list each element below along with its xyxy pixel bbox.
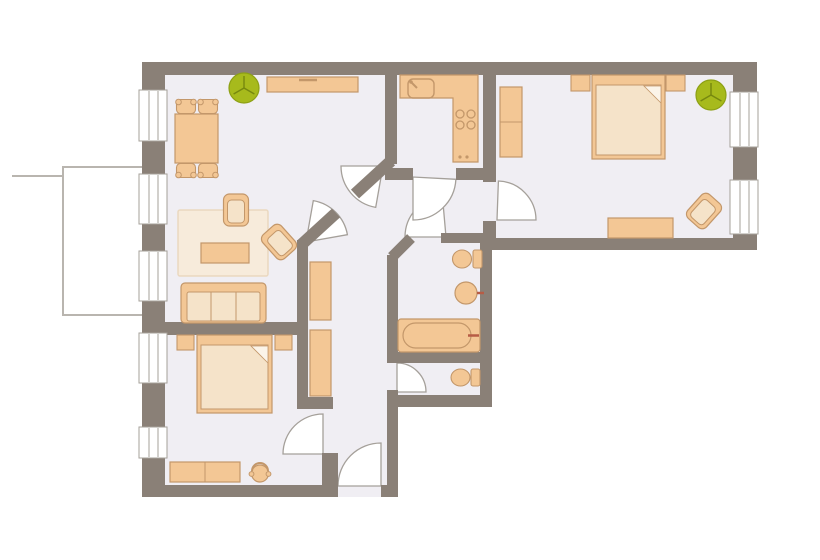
wall-bed1-west-upper [483, 75, 496, 182]
wall-bath-top [441, 233, 483, 243]
dining-table [175, 114, 218, 163]
potted-plant [229, 73, 259, 103]
wall-bed1-west-lower [483, 221, 496, 238]
nightstand [275, 335, 292, 350]
window-left-3 [139, 251, 167, 301]
potted-plant [696, 80, 726, 110]
sofa [181, 283, 266, 323]
layer-balcony [12, 167, 145, 315]
wall-hall-stub [297, 397, 333, 409]
wall-wc-west-stub [387, 390, 398, 396]
toilet [451, 369, 480, 386]
window-left-1 [139, 90, 167, 141]
nightstand [666, 75, 685, 91]
wall-wc-bottom [387, 395, 492, 407]
coffee-table [201, 243, 249, 263]
armchair [224, 194, 249, 226]
sideboard [267, 77, 358, 92]
dining-chair [176, 164, 197, 178]
wall-hall-east-lower [387, 407, 398, 487]
window-left-5 [139, 427, 167, 458]
floor-plan-canvas [0, 0, 820, 560]
toilet [453, 250, 483, 268]
wall-bed2-east [322, 453, 338, 485]
wall-bottom-west [142, 485, 338, 497]
nightstand [571, 75, 590, 91]
balcony [63, 167, 145, 315]
floor-plan [0, 0, 820, 560]
window-right-2 [730, 180, 758, 234]
window-left-4 [139, 333, 167, 383]
dining-chair [198, 99, 219, 113]
wall-top [142, 62, 757, 75]
dresser [170, 462, 240, 482]
nightstand [177, 335, 194, 350]
wall-kitchen-west [385, 62, 397, 164]
wall-bath-east [480, 250, 492, 395]
window-right-1 [730, 92, 758, 147]
double-bed [197, 335, 272, 413]
wall-bath-wc-divider [387, 352, 492, 363]
wall-living-east [297, 240, 308, 397]
wall-rightwing-bottom [480, 238, 757, 250]
bathtub [398, 319, 480, 352]
dining-chair [176, 99, 197, 113]
hall-cabinet [310, 330, 331, 396]
bench [608, 218, 673, 238]
wall-kitchen-bottom-b [456, 168, 496, 180]
hall-cabinet [310, 262, 331, 320]
double-bed [592, 75, 665, 159]
wall-bath-west [387, 255, 398, 363]
wardrobe [500, 87, 522, 157]
window-left-2 [139, 174, 167, 224]
dining-chair [198, 164, 219, 178]
